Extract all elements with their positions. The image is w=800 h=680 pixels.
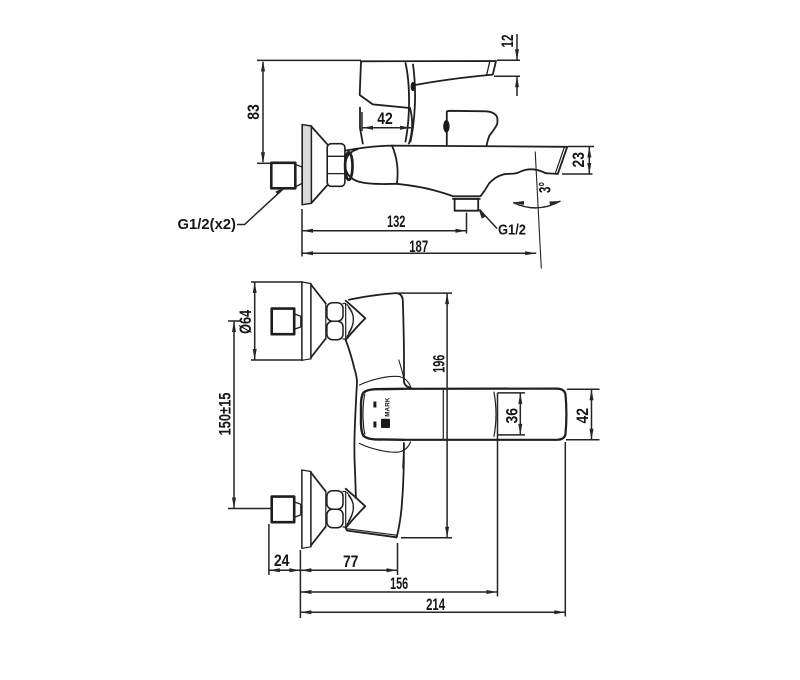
svg-text:77: 77: [343, 553, 359, 571]
svg-text:132: 132: [387, 213, 406, 231]
svg-text:3°: 3°: [537, 182, 555, 193]
svg-text:Ø64: Ø64: [237, 309, 255, 334]
svg-text:214: 214: [426, 596, 446, 614]
svg-text:187: 187: [409, 238, 428, 256]
svg-text:150±15: 150±15: [217, 393, 235, 436]
svg-text:G1/2(x2): G1/2(x2): [178, 216, 237, 233]
svg-text:24: 24: [274, 552, 290, 570]
svg-text:12: 12: [499, 35, 517, 48]
svg-text:23: 23: [570, 152, 588, 168]
svg-text:156: 156: [390, 575, 408, 593]
svg-text:83: 83: [245, 104, 263, 120]
svg-text:36: 36: [504, 408, 522, 424]
svg-text:42: 42: [574, 408, 592, 424]
svg-text:42: 42: [377, 110, 393, 128]
svg-text:G1/2: G1/2: [498, 222, 526, 239]
svg-text:196: 196: [431, 355, 449, 373]
svg-text:MARK: MARK: [384, 397, 391, 417]
